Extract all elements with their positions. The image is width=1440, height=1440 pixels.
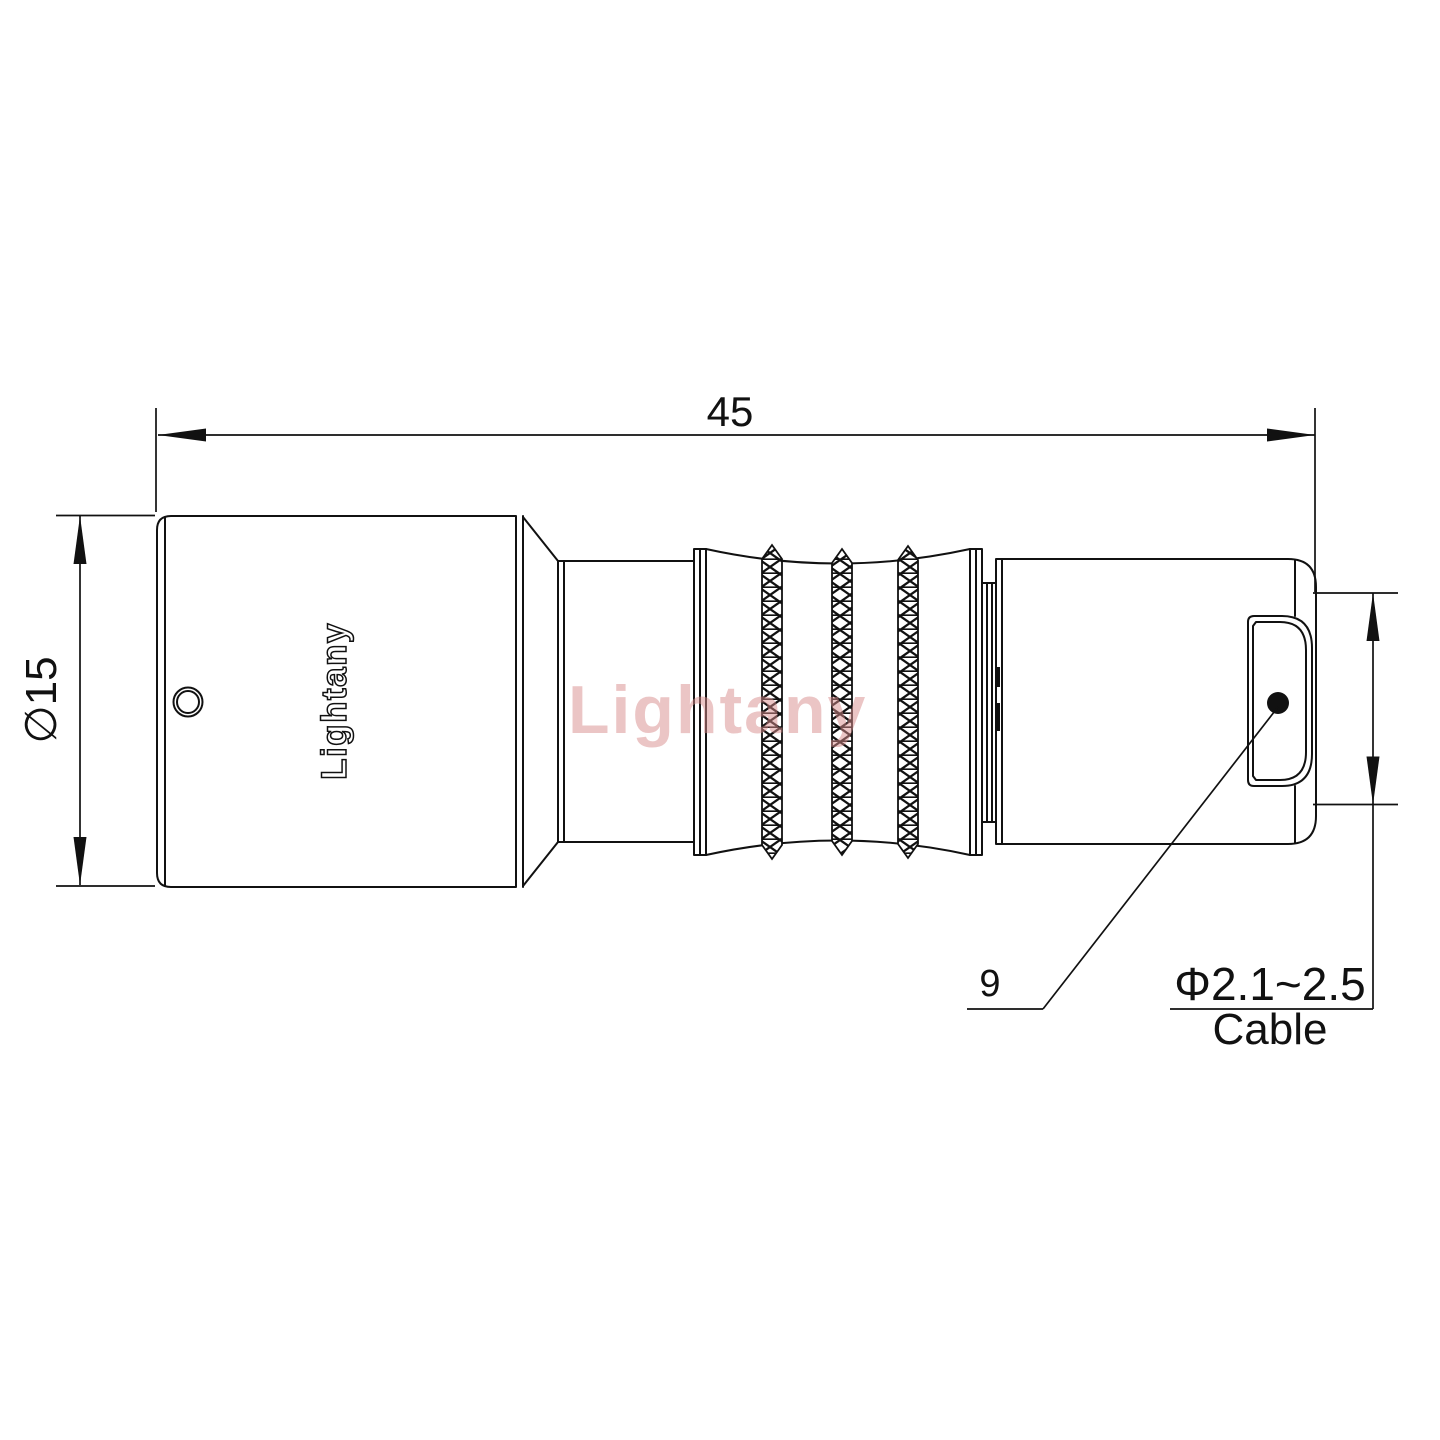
cable-word-text: Cable — [1213, 1005, 1328, 1054]
callout-value: 9 — [979, 963, 1000, 1005]
connector-drawing: Lightany Lightany 45 ∅15 Φ2.1~2.5 Cable … — [0, 0, 1440, 1440]
cable-range-text: Φ2.1~2.5 — [1174, 958, 1365, 1010]
dim-value-diameter: ∅15 — [17, 656, 66, 743]
dim-value-length: 45 — [707, 388, 754, 435]
leader-dot — [1267, 692, 1289, 714]
arrowhead-entry-up — [1367, 593, 1380, 641]
arrowhead-left — [158, 429, 206, 442]
cone-top-edge — [523, 517, 558, 561]
watermark-text: Lightany — [568, 672, 867, 748]
arrowhead-down — [74, 837, 87, 885]
knurl-band-3 — [898, 546, 918, 858]
cone-bottom-edge — [523, 842, 558, 886]
technical-drawing-page: Lightany Lightany 45 ∅15 Φ2.1~2.5 Cable … — [0, 0, 1440, 1440]
dimension-diameter: ∅15 — [17, 516, 155, 887]
arrowhead-up — [74, 516, 87, 564]
recessed-ring — [982, 583, 996, 822]
arrowhead-entry-down — [1367, 757, 1380, 805]
arrowhead-right — [1267, 429, 1315, 442]
body-engraving-text: Lightany — [315, 622, 354, 780]
